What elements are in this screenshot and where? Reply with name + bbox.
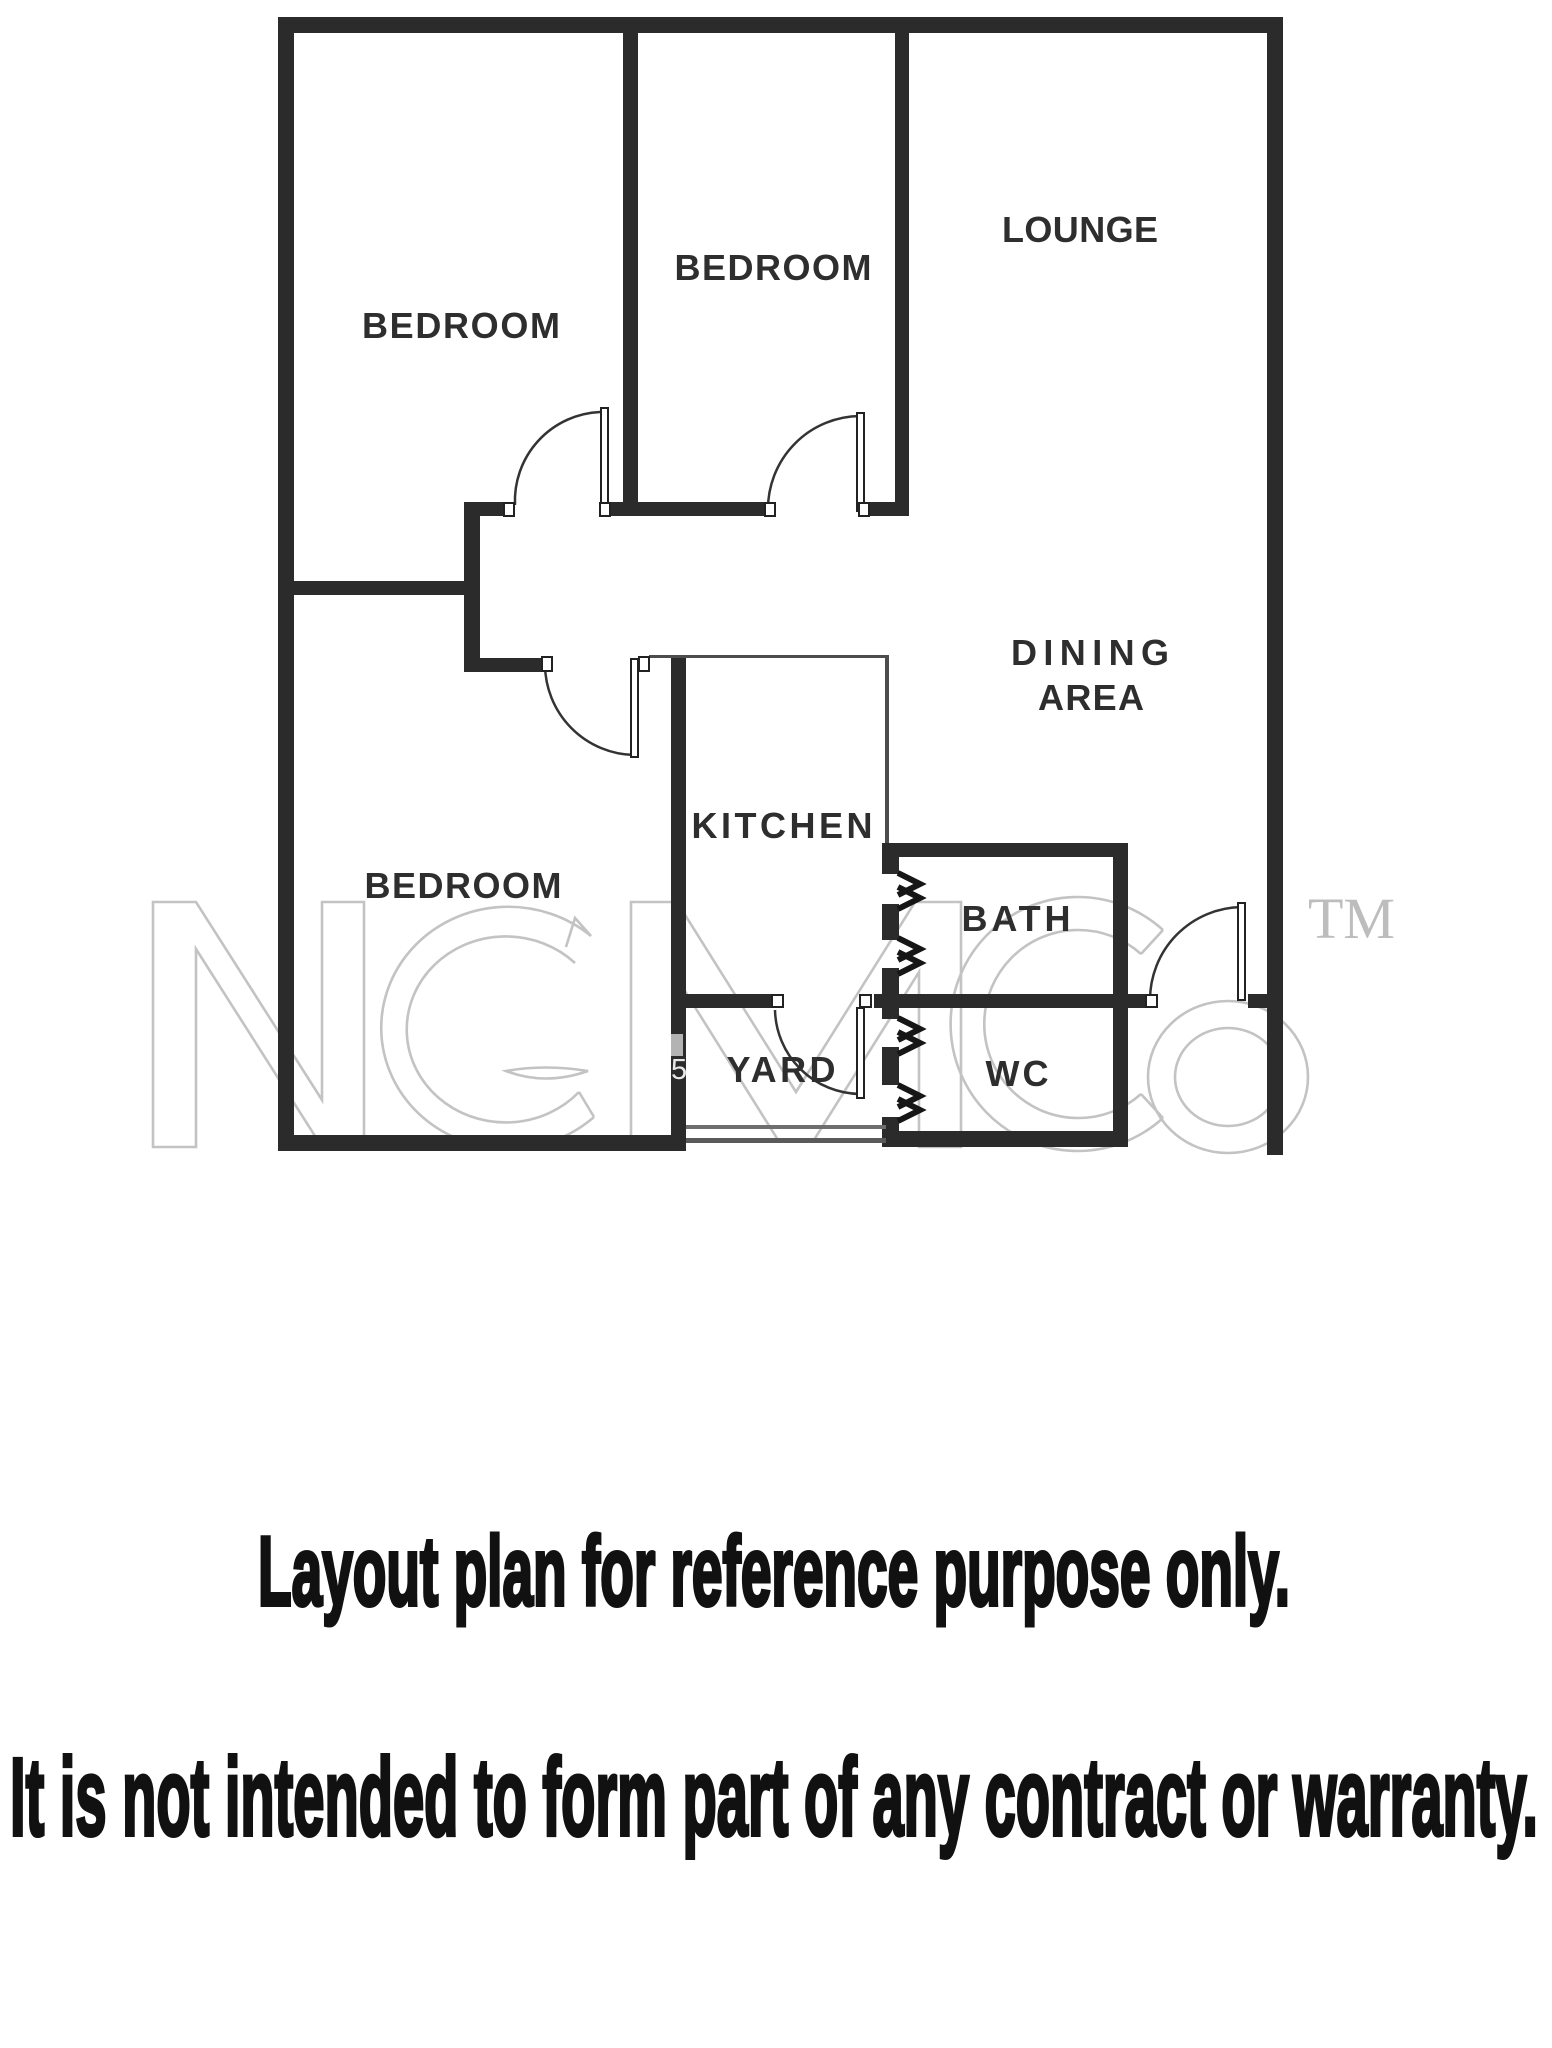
svg-text:It is not intended to form par: It is not intended to form part of any c… bbox=[10, 1736, 1538, 1859]
svg-text:LOUNGE: LOUNGE bbox=[1002, 209, 1158, 250]
svg-text:BEDROOM: BEDROOM bbox=[362, 305, 560, 346]
svg-text:AREA: AREA bbox=[1038, 677, 1144, 718]
svg-text:TM: TM bbox=[1308, 886, 1395, 951]
svg-text:BEDROOM: BEDROOM bbox=[365, 865, 562, 906]
svg-text:BEDROOM: BEDROOM bbox=[675, 247, 872, 288]
svg-text:YARD: YARD bbox=[727, 1049, 836, 1090]
svg-text:Layout plan for reference purp: Layout plan for reference purpose only. bbox=[258, 1516, 1290, 1626]
svg-text:5: 5 bbox=[671, 1054, 687, 1086]
svg-text:WC: WC bbox=[986, 1053, 1049, 1094]
